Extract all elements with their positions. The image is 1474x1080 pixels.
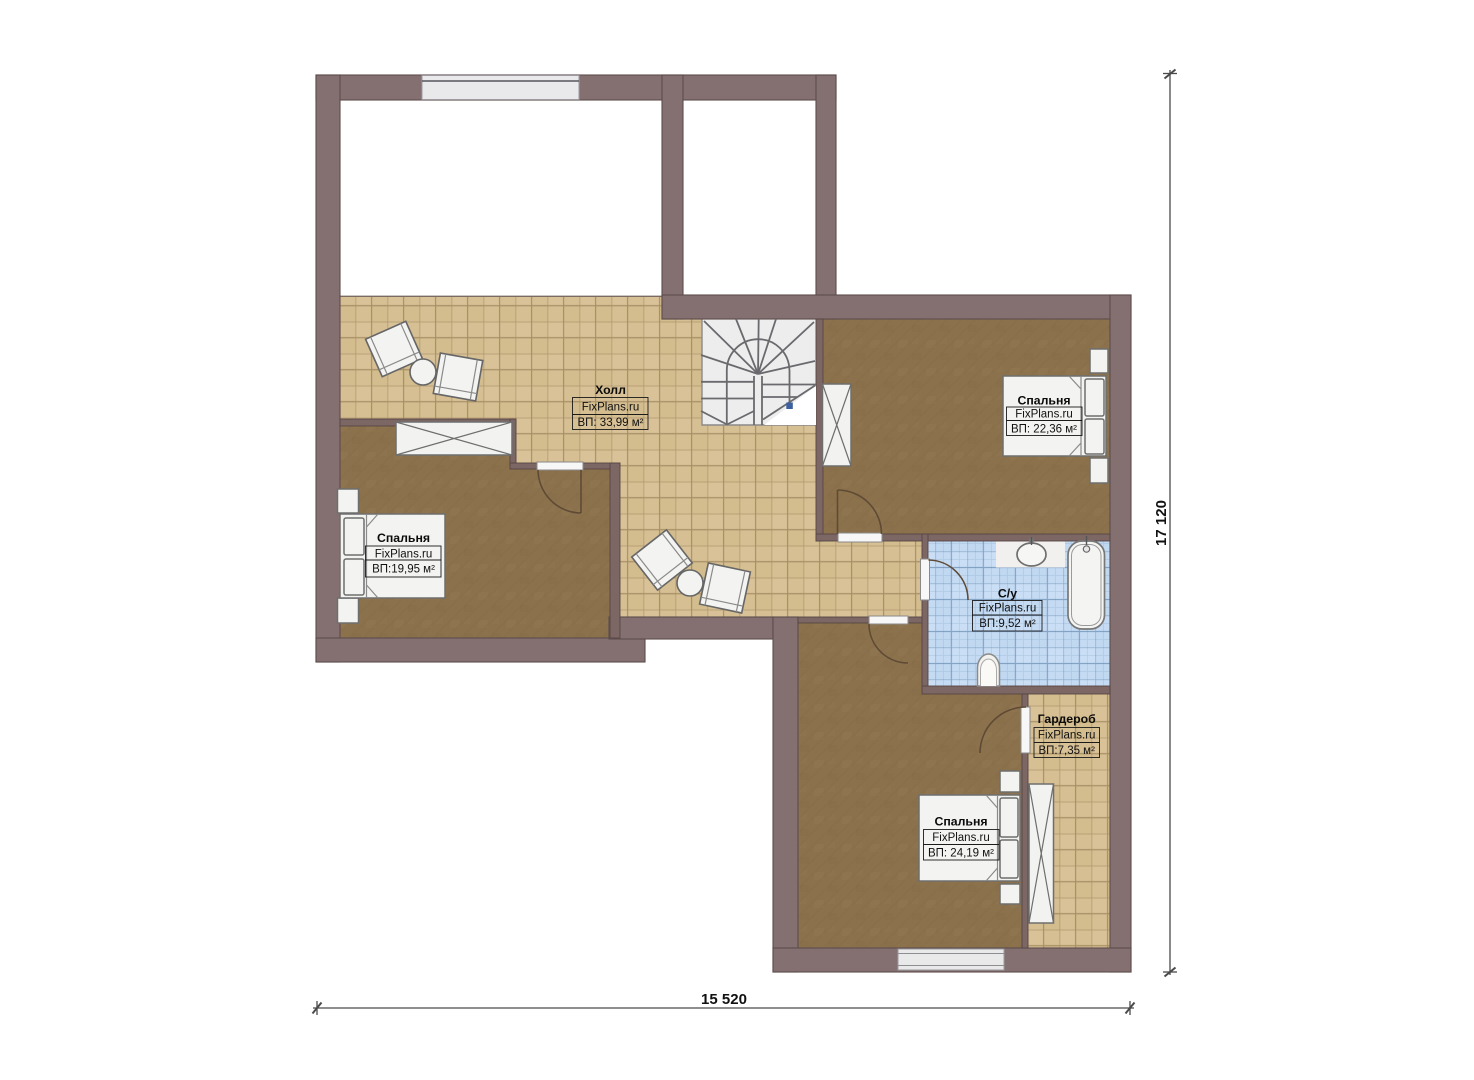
svg-text:ВП: 22,36 м²: ВП: 22,36 м² <box>1011 424 1077 436</box>
svg-text:Гардероб: Гардероб <box>1038 712 1097 726</box>
svg-text:ВП: 24,19 м²: ВП: 24,19 м² <box>928 848 994 860</box>
svg-text:ВП:9,52 м²: ВП:9,52 м² <box>979 618 1036 630</box>
svg-text:Спальня: Спальня <box>934 815 987 829</box>
svg-text:Спальня: Спальня <box>1017 394 1070 408</box>
svg-text:FixPlans.ru: FixPlans.ru <box>1015 409 1073 421</box>
svg-text:Спальня: Спальня <box>377 531 430 545</box>
svg-text:ВП:19,95 м²: ВП:19,95 м² <box>372 564 435 576</box>
svg-text:FixPlans.ru: FixPlans.ru <box>932 832 990 844</box>
svg-text:FixPlans.ru: FixPlans.ru <box>979 603 1037 615</box>
svg-text:15 520: 15 520 <box>701 991 747 1008</box>
svg-text:С/у: С/у <box>998 587 1017 601</box>
svg-text:FixPlans.ru: FixPlans.ru <box>375 549 433 561</box>
svg-text:FixPlans.ru: FixPlans.ru <box>582 402 640 414</box>
svg-text:ВП:7,35 м²: ВП:7,35 м² <box>1038 745 1095 757</box>
svg-text:17 120: 17 120 <box>1153 500 1170 546</box>
svg-text:Холл: Холл <box>595 383 626 397</box>
svg-text:FixPlans.ru: FixPlans.ru <box>1038 730 1096 742</box>
svg-text:ВП: 33,99 м²: ВП: 33,99 м² <box>577 417 643 429</box>
